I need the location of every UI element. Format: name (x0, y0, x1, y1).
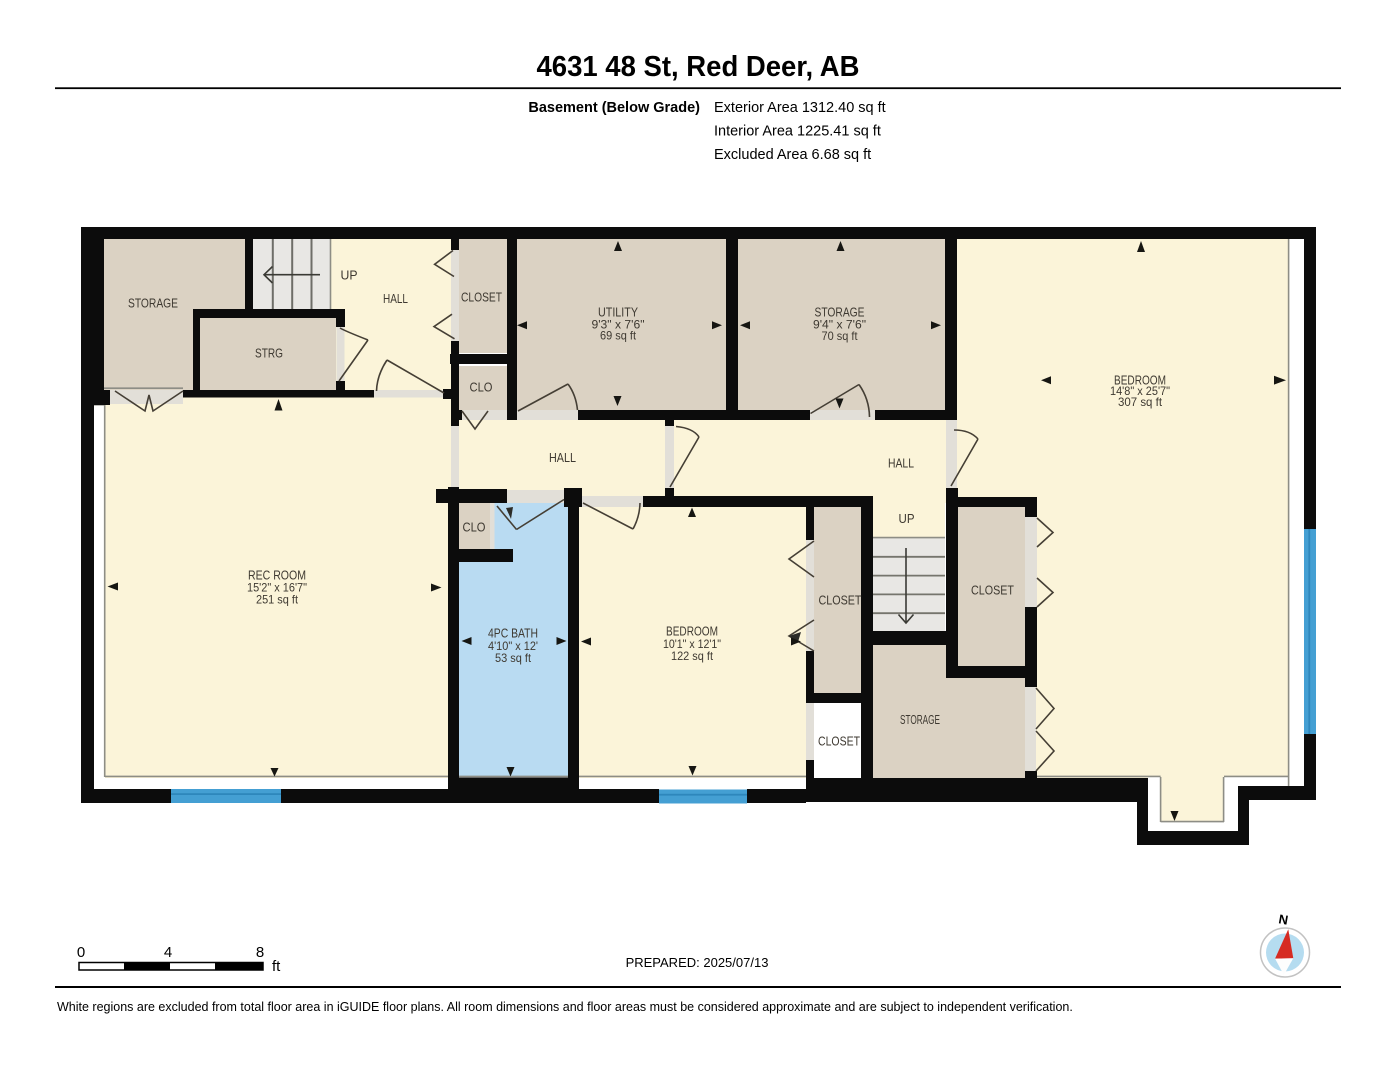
svg-text:8: 8 (256, 944, 264, 961)
svg-text:Exterior Area 1312.40 sq ft: Exterior Area 1312.40 sq ft (714, 100, 886, 116)
svg-text:STRG: STRG (255, 346, 283, 361)
svg-text:307 sq ft: 307 sq ft (1118, 395, 1163, 409)
svg-text:122 sq ft: 122 sq ft (671, 649, 714, 663)
svg-text:UP: UP (341, 268, 358, 283)
svg-text:251 sq ft: 251 sq ft (256, 593, 299, 607)
svg-text:ft: ft (272, 958, 281, 975)
svg-text:HALL: HALL (549, 450, 576, 465)
svg-text:70 sq ft: 70 sq ft (822, 329, 859, 343)
svg-text:UP: UP (899, 511, 915, 526)
svg-text:CLOSET: CLOSET (819, 593, 862, 608)
svg-text:N: N (1277, 911, 1289, 927)
svg-text:4: 4 (164, 944, 172, 961)
svg-text:53 sq ft: 53 sq ft (495, 651, 532, 665)
svg-text:69 sq ft: 69 sq ft (600, 329, 637, 343)
svg-text:STORAGE: STORAGE (128, 296, 178, 311)
svg-text:Interior Area 1225.41 sq ft: Interior Area 1225.41 sq ft (714, 124, 881, 140)
svg-text:HALL: HALL (383, 291, 408, 306)
svg-text:4631 48 St, Red Deer, AB: 4631 48 St, Red Deer, AB (537, 51, 860, 83)
svg-text:CLO: CLO (463, 520, 486, 535)
svg-text:PREPARED: 2025/07/13: PREPARED: 2025/07/13 (626, 955, 769, 970)
svg-text:CLO: CLO (470, 380, 493, 395)
svg-text:HALL: HALL (888, 456, 914, 471)
svg-text:0: 0 (77, 944, 85, 961)
svg-text:Basement (Below Grade): Basement (Below Grade) (528, 100, 700, 116)
svg-text:STORAGE: STORAGE (900, 712, 940, 727)
svg-text:CLOSET: CLOSET (461, 290, 502, 305)
svg-text:CLOSET: CLOSET (818, 734, 860, 749)
svg-text:CLOSET: CLOSET (971, 583, 1014, 598)
svg-text:Excluded Area 6.68 sq ft: Excluded Area 6.68 sq ft (714, 147, 871, 163)
svg-text:White regions are excluded fro: White regions are excluded from total fl… (57, 1000, 1073, 1014)
